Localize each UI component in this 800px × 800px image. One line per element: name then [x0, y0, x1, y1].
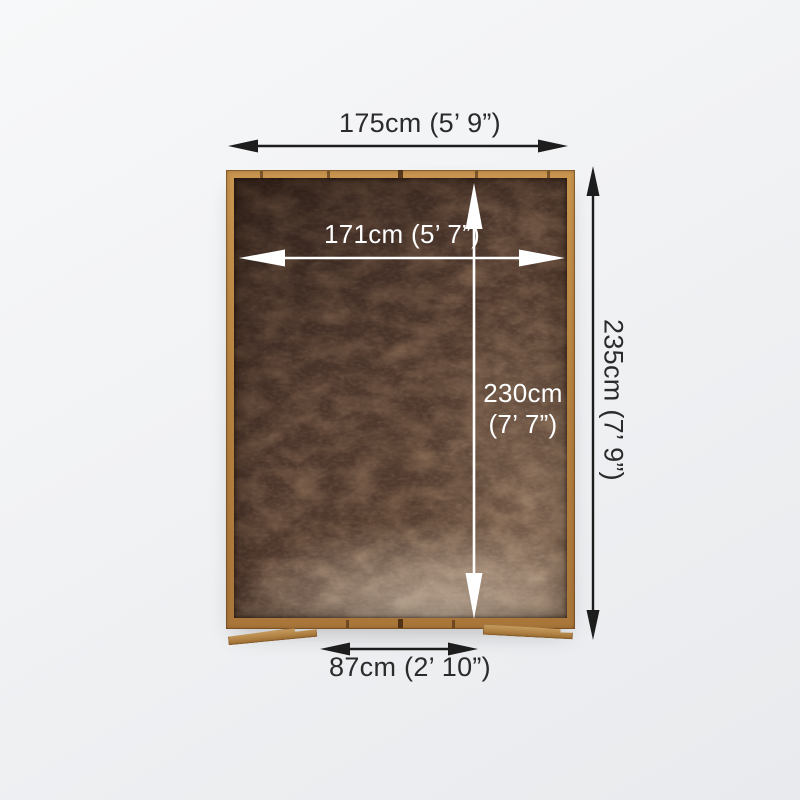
frame-notch [398, 170, 403, 179]
arrowhead-up-icon [587, 166, 600, 196]
frame-notch [547, 171, 550, 178]
internal-depth-label: 230cm (7’ 7”) [483, 378, 563, 439]
frame-notch [475, 171, 478, 178]
arrowhead-down-icon [587, 610, 600, 640]
frame-notch [398, 619, 403, 628]
internal-depth-cm: 230cm [483, 378, 563, 409]
door-width-label: 87cm (2’ 10”) [329, 652, 491, 683]
shed-dimension-diagram: 175cm (5’ 9”) 171cm (5’ 7”) 230cm (7’ 7”… [0, 0, 800, 800]
arrowhead-right-icon [538, 140, 568, 153]
frame-notch [452, 620, 455, 628]
arrowhead-right-icon [519, 250, 565, 267]
frame-notch [327, 171, 330, 178]
internal-depth-ft: (7’ 7”) [483, 409, 563, 440]
arrowhead-down-icon [466, 573, 483, 619]
arrowhead-left-icon [239, 250, 285, 267]
frame-notch [260, 171, 263, 178]
frame-notch [346, 620, 349, 628]
external-depth-label: 235cm (7’ 9”) [598, 319, 629, 481]
internal-width-label: 171cm (5’ 7”) [324, 219, 480, 250]
external-width-label: 175cm (5’ 9”) [339, 108, 501, 139]
arrowhead-left-icon [228, 140, 258, 153]
